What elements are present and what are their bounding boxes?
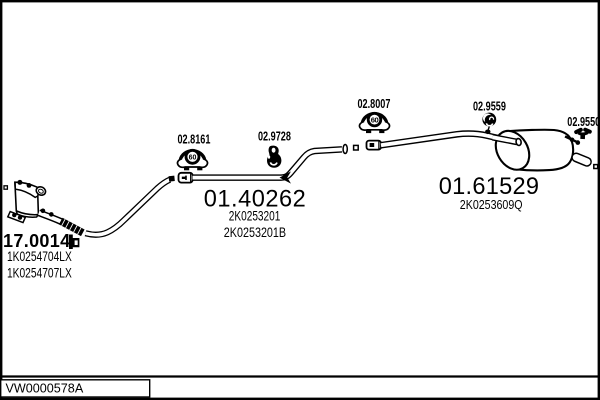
svg-text:2K0253609Q: 2K0253609Q xyxy=(460,197,523,212)
svg-text:02.8007: 02.8007 xyxy=(358,98,391,112)
svg-text:02.8161: 02.8161 xyxy=(178,133,211,147)
svg-text:60: 60 xyxy=(189,154,197,161)
svg-text:1K0254707LX: 1K0254707LX xyxy=(7,265,72,281)
svg-text:01.61529: 01.61529 xyxy=(439,174,539,200)
svg-text:1K0254704LX: 1K0254704LX xyxy=(7,248,72,264)
svg-text:02.9728: 02.9728 xyxy=(258,130,291,144)
svg-text:02.9559: 02.9559 xyxy=(473,100,506,114)
svg-text:60: 60 xyxy=(371,115,379,124)
svg-text:2K0253201B: 2K0253201B xyxy=(224,224,286,240)
svg-text:02.9550: 02.9550 xyxy=(567,116,600,130)
svg-text:VW0000578A: VW0000578A xyxy=(6,382,84,396)
svg-text:2K0253201: 2K0253201 xyxy=(229,208,281,224)
